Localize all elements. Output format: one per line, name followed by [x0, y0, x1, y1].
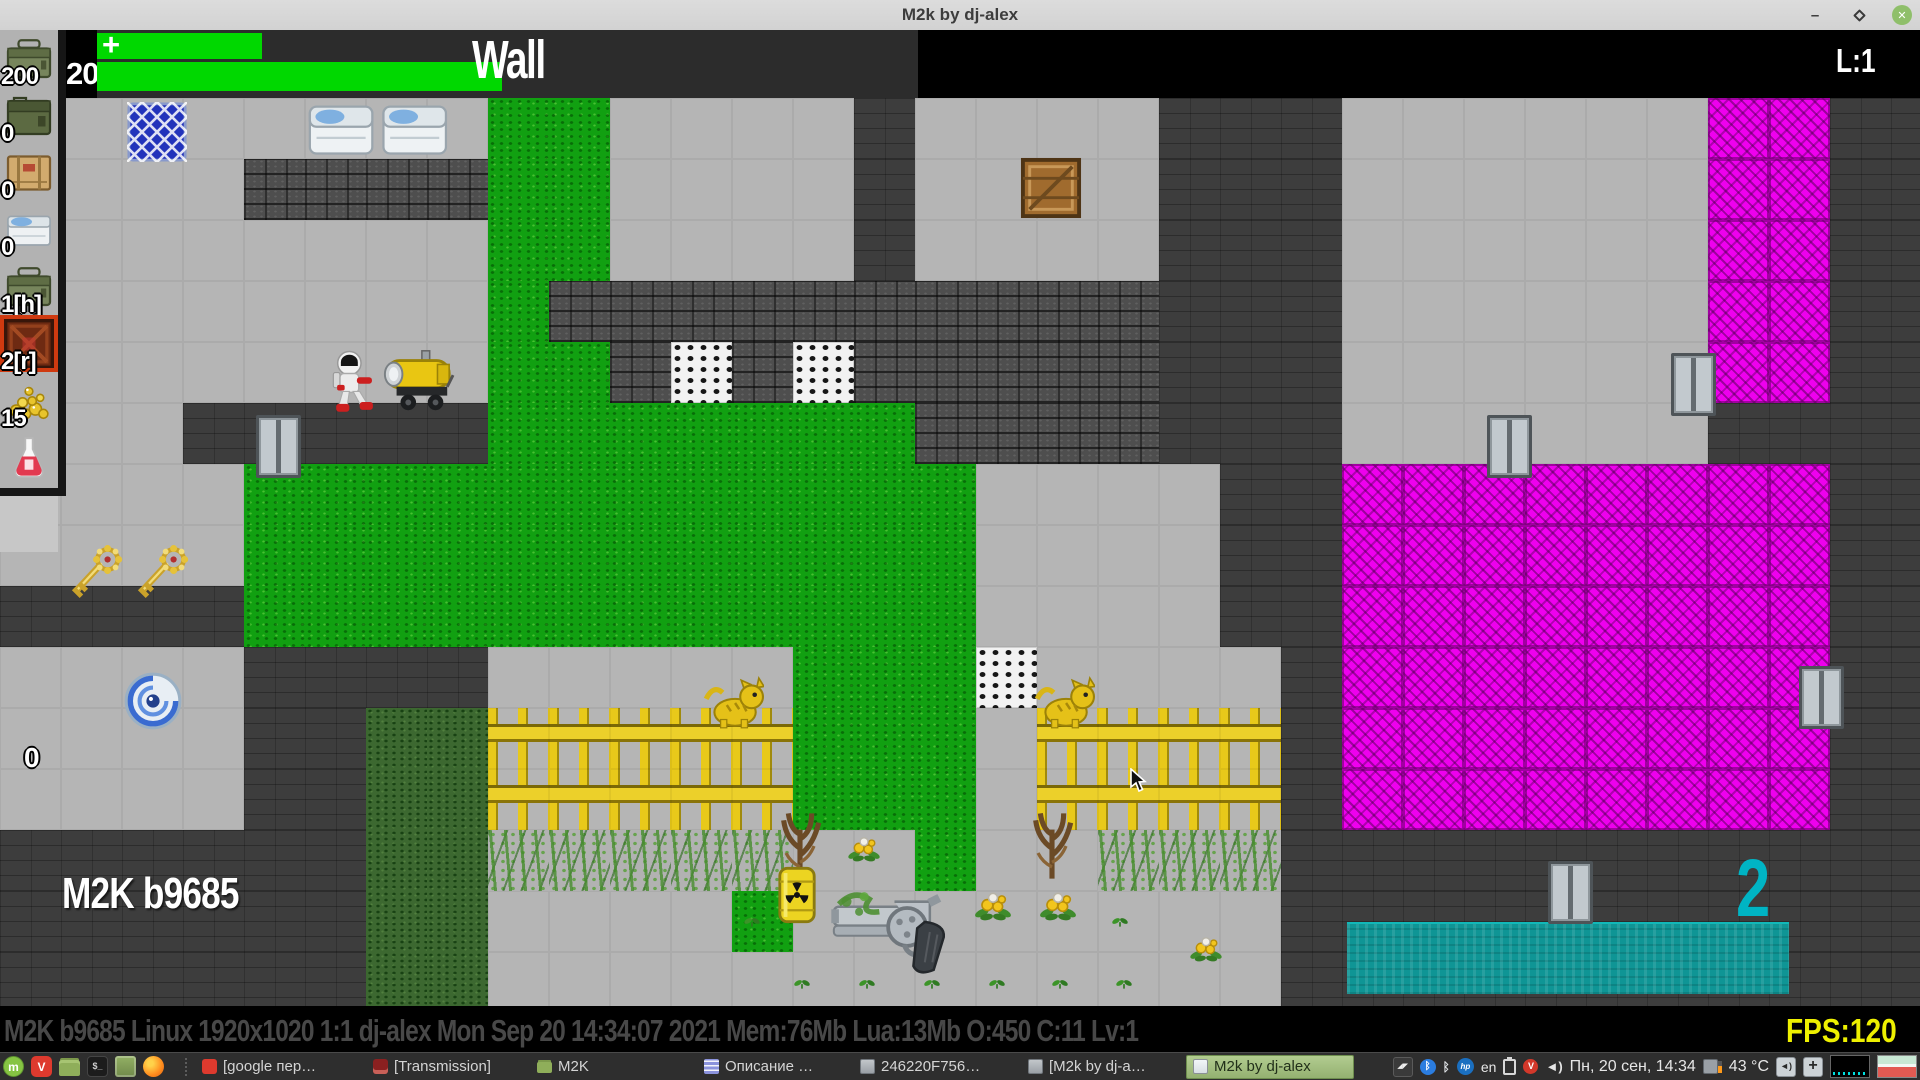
tile-floor [122, 464, 183, 525]
tile-floor [1159, 464, 1220, 525]
barrel[interactable] [776, 863, 818, 927]
supply-boxes[interactable] [304, 100, 454, 158]
tile-floor [1342, 98, 1403, 159]
icon-glyph: hp [1460, 1063, 1470, 1071]
tile-floor [61, 159, 122, 220]
tile-stone-brick [610, 281, 671, 342]
taskbar-launchers: mV$_ [3, 1053, 164, 1080]
icon-glyph: ᛒ [1443, 1061, 1450, 1073]
tile-wall [1830, 464, 1891, 525]
player-astronaut[interactable] [332, 350, 378, 414]
tile-magenta-wall [1464, 769, 1525, 830]
doc-icon [704, 1059, 719, 1074]
tile-magenta-wall [1769, 464, 1830, 525]
teleport-pad[interactable] [127, 102, 187, 162]
tile-grass [854, 769, 915, 830]
taskbar-window-2[interactable]: [Transmission] [367, 1055, 525, 1079]
tile-wall [1220, 220, 1281, 281]
move-box[interactable]: + [1803, 1057, 1823, 1077]
transmission-icon [373, 1059, 388, 1074]
tile-floor [1159, 525, 1220, 586]
tile-moss [366, 830, 427, 891]
tile-fence [1159, 769, 1220, 830]
tile-floor [1586, 342, 1647, 403]
volume[interactable]: ◄) [1545, 1060, 1562, 1073]
elevator-door[interactable] [256, 415, 301, 478]
tile-floor [122, 220, 183, 281]
cat[interactable] [1033, 674, 1095, 732]
mint-menu-icon[interactable]: m [3, 1056, 24, 1077]
tile-stone-brick [1037, 342, 1098, 403]
tile-floor [1403, 220, 1464, 281]
tile-grass [671, 525, 732, 586]
taskbar-separator [185, 1058, 187, 1076]
tile-floor [915, 220, 976, 281]
tile-floor [1525, 159, 1586, 220]
tile-grass [610, 464, 671, 525]
tile-wall [1891, 586, 1920, 647]
tile-grass [549, 525, 610, 586]
tile-wall [366, 647, 427, 708]
tile-wall [1830, 342, 1891, 403]
maximize-button[interactable] [1848, 4, 1870, 26]
green-app-icon[interactable] [115, 1056, 136, 1077]
tile-floor [305, 281, 366, 342]
tile-wall [0, 952, 61, 1013]
tile-grass [854, 525, 915, 586]
game-map[interactable] [0, 98, 1920, 1016]
inventory-slot-6[interactable]: 2[r] [0, 315, 58, 372]
tile-wall [1159, 342, 1220, 403]
tile-wall [1281, 98, 1342, 159]
tile-wall [0, 830, 61, 891]
tile-grass [488, 281, 549, 342]
tile-grass [305, 525, 366, 586]
tile-grass [793, 403, 854, 464]
tile-fence [1220, 708, 1281, 769]
tile-wall [305, 891, 366, 952]
tile-stone-brick [1098, 403, 1159, 464]
tile-wall [1220, 281, 1281, 342]
tile-wall [1281, 769, 1342, 830]
tile-floor [1098, 586, 1159, 647]
tile-wall [183, 586, 244, 647]
tile-floor [671, 952, 732, 1013]
tile-floor [610, 98, 671, 159]
audio-box[interactable]: ◄) [1776, 1057, 1796, 1077]
tile-magenta-wall [1403, 708, 1464, 769]
tile-grass [915, 769, 976, 830]
tile-wall [1159, 98, 1220, 159]
tile-floor [61, 98, 122, 159]
tile-wall [1647, 830, 1708, 891]
tile-floor [671, 159, 732, 220]
sprout [793, 976, 811, 990]
tile-floor [1342, 403, 1403, 464]
tile-wall [1891, 830, 1920, 891]
icon-glyph: V [37, 1061, 45, 1073]
tile-magenta-wall [1403, 464, 1464, 525]
tile-floor [549, 952, 610, 1013]
tile-wall [183, 403, 244, 464]
hp-badge[interactable]: hp [1457, 1058, 1474, 1075]
window-button-label: M2K [558, 1058, 589, 1075]
bluetooth-plain[interactable]: ᛒ [1443, 1061, 1450, 1073]
tile-moss [427, 769, 488, 830]
taskbar-window-8[interactable]: M2k by dj-alex [1186, 1055, 1354, 1079]
tile-wall [183, 952, 244, 1013]
tile-floor [915, 159, 976, 220]
tile-vines [549, 830, 610, 891]
tile-magenta-wall [1708, 159, 1769, 220]
tile-floor [122, 159, 183, 220]
tile-floor [488, 952, 549, 1013]
tile-floor [1220, 952, 1281, 1013]
status-text: M2K b9685 Linux 1920x1020 1:1 dj-alex Mo… [4, 1013, 1138, 1049]
tile-grass [610, 403, 671, 464]
tile-magenta-wall [1769, 220, 1830, 281]
tile-floor [915, 98, 976, 159]
tile-checker [671, 342, 732, 403]
tile-wall [1281, 281, 1342, 342]
cat[interactable] [702, 674, 764, 732]
wooden-crate[interactable] [1020, 157, 1082, 219]
tile-vines [610, 830, 671, 891]
tile-floor [1647, 98, 1708, 159]
tile-floor [976, 708, 1037, 769]
clipboard[interactable] [1503, 1059, 1516, 1075]
flower [1038, 889, 1078, 921]
tile-fence [610, 708, 671, 769]
tile-magenta-wall [1586, 525, 1647, 586]
tile-grass [366, 586, 427, 647]
taskbar-window-3[interactable]: M2K [531, 1055, 616, 1079]
tile-fence [1098, 708, 1159, 769]
tile-grass [915, 830, 976, 891]
tile-wall [1891, 647, 1920, 708]
tile-floor [1342, 220, 1403, 281]
tile-wall [1220, 403, 1281, 464]
graph-stripes[interactable] [1877, 1055, 1917, 1078]
tile-grass [488, 220, 549, 281]
tile-floor [1220, 647, 1281, 708]
tile-floor [488, 647, 549, 708]
tile-floor [1342, 281, 1403, 342]
tile-wall [1281, 586, 1342, 647]
tile-wall [1891, 891, 1920, 952]
tile-grass [366, 464, 427, 525]
inventory-slot-1[interactable]: 200 [0, 30, 58, 87]
tile-fence [1220, 769, 1281, 830]
tile-floor [976, 586, 1037, 647]
desktop: 0 M2K b9685 2 200 + Wall L:1 2000001[h]2… [0, 0, 1920, 1080]
temperature[interactable]: 43 °C [1729, 1058, 1769, 1076]
cpu-monitor[interactable] [1703, 1059, 1718, 1074]
tile-fence [549, 708, 610, 769]
tile-grass [793, 586, 854, 647]
tile-moss [366, 952, 427, 1013]
inventory-slot-5[interactable]: 1[h] [0, 258, 58, 315]
window-button-label: 246220F756… [881, 1058, 980, 1075]
graph-black[interactable] [1830, 1055, 1870, 1078]
tile-floor [1586, 220, 1647, 281]
inventory-slot-8[interactable] [0, 429, 58, 486]
inventory-slot-3[interactable]: 0 [0, 144, 58, 201]
tile-floor [1464, 342, 1525, 403]
tile-stone-brick [976, 342, 1037, 403]
tile-grass [732, 403, 793, 464]
window-titlebar[interactable]: M2k by dj-alex – ✕ [0, 0, 1920, 30]
tile-floor [1586, 159, 1647, 220]
elevator-door[interactable] [1671, 353, 1716, 416]
slot-count: 2[r] [1, 350, 36, 374]
tile-floor [0, 769, 61, 830]
tile-wall [1281, 830, 1342, 891]
tile-magenta-wall [1586, 769, 1647, 830]
tile-wall [1891, 159, 1920, 220]
tile-grass [305, 586, 366, 647]
heater[interactable] [381, 348, 455, 414]
health-bar: + [97, 33, 262, 59]
tile-wall [305, 769, 366, 830]
firefox-icon[interactable] [143, 1056, 164, 1077]
item-count-label: 0 [24, 744, 40, 772]
tile-floor [793, 98, 854, 159]
tile-wall [122, 952, 183, 1013]
tile-stone-brick [1037, 281, 1098, 342]
tile-floor [671, 98, 732, 159]
tile-floor [122, 769, 183, 830]
elevator-door[interactable] [1487, 415, 1532, 478]
tile-floor [976, 525, 1037, 586]
slot-count: 15 [1, 407, 26, 431]
tile-floor [1037, 586, 1098, 647]
inventory-slot-4[interactable]: 0 [0, 201, 58, 258]
tile-stone-brick [1098, 281, 1159, 342]
tile-stone-brick [427, 159, 488, 220]
tile-wall [1281, 952, 1342, 1013]
elevator-door[interactable] [1799, 666, 1844, 729]
tile-magenta-wall [1708, 220, 1769, 281]
tile-wall [1830, 220, 1891, 281]
tile-stone-brick [854, 281, 915, 342]
gold-key[interactable] [64, 540, 126, 608]
tile-magenta-wall [1525, 708, 1586, 769]
tile-stone-brick [549, 281, 610, 342]
fps-counter: FPS:120 [1786, 1012, 1897, 1050]
inventory-slot-2[interactable]: 0 [0, 87, 58, 144]
tile-wall [854, 98, 915, 159]
flash-icon[interactable]: ◢◤ [1393, 1057, 1413, 1077]
tile-wall [1769, 830, 1830, 891]
tile-stone-brick [793, 281, 854, 342]
tile-wall [1342, 830, 1403, 891]
tile-grass [305, 464, 366, 525]
tile-grass [549, 159, 610, 220]
tile-stone-brick [610, 342, 671, 403]
tile-grass [549, 403, 610, 464]
vivaldi-launch-icon[interactable]: V [31, 1056, 52, 1077]
sprout [1051, 976, 1069, 990]
tile-magenta-wall [1403, 525, 1464, 586]
tile-floor [1586, 281, 1647, 342]
slot-count: 0 [1, 179, 13, 203]
tile-magenta-wall [1647, 769, 1708, 830]
tile-floor [1647, 281, 1708, 342]
tile-wall [1830, 586, 1891, 647]
tile-floor [1037, 525, 1098, 586]
tile-floor [732, 159, 793, 220]
taskbar-window-5[interactable]: Описание … [698, 1055, 848, 1079]
red-badge[interactable]: V [1523, 1059, 1538, 1074]
tile-floor [1403, 403, 1464, 464]
tile-magenta-wall [1525, 525, 1586, 586]
tile-floor [488, 891, 549, 952]
tile-wall [305, 708, 366, 769]
tile-floor [1037, 464, 1098, 525]
tile-wall [0, 891, 61, 952]
tile-grass [671, 586, 732, 647]
tile-wall [1281, 891, 1342, 952]
files-icon[interactable] [59, 1060, 80, 1076]
close-button[interactable]: ✕ [1892, 5, 1912, 25]
tile-floor [1464, 220, 1525, 281]
tile-magenta-wall [1769, 98, 1830, 159]
taskbar-window-1[interactable]: [google пер… [196, 1055, 361, 1079]
tile-floor [183, 220, 244, 281]
tile-wall [305, 830, 366, 891]
inventory-sidebar: 2000001[h]2[r]15 [0, 30, 66, 496]
plus-icon: + [102, 27, 120, 63]
portal[interactable] [120, 668, 186, 734]
clock[interactable]: Пн, 20 сен, 14:34 [1570, 1058, 1696, 1076]
energy-bar [97, 62, 502, 91]
tile-magenta-wall [1342, 769, 1403, 830]
tile-grass [915, 525, 976, 586]
cyan-number-label: 2 [1736, 848, 1770, 930]
tile-wall [244, 769, 305, 830]
tile-magenta-wall [1769, 342, 1830, 403]
tile-grass [854, 708, 915, 769]
tile-grass [488, 403, 549, 464]
tile-magenta-wall [1708, 98, 1769, 159]
tile-magenta-wall [1403, 647, 1464, 708]
gold-key[interactable] [130, 540, 192, 608]
mouse-cursor [1130, 768, 1152, 799]
hud-counter: 200 [66, 30, 97, 98]
tile-grass [610, 586, 671, 647]
tile-floor [1647, 220, 1708, 281]
slot-count: 1[h] [1, 293, 41, 317]
tile-magenta-wall [1708, 464, 1769, 525]
tile-floor [549, 647, 610, 708]
tile-magenta-wall [1464, 525, 1525, 586]
tile-wall [1891, 525, 1920, 586]
tile-floor [183, 464, 244, 525]
inventory-slot-7[interactable]: 15 [0, 372, 58, 429]
tile-floor [61, 342, 122, 403]
keyboard-layout[interactable]: en [1481, 1059, 1497, 1075]
tile-stone-brick [732, 342, 793, 403]
tile-wall [1281, 708, 1342, 769]
revolver[interactable] [828, 884, 966, 980]
tile-magenta-wall [1586, 647, 1647, 708]
taskbar-window-6[interactable]: 246220F756… [854, 1055, 1016, 1079]
tile-fence [671, 769, 732, 830]
tile-floor [671, 891, 732, 952]
tile-grass [732, 586, 793, 647]
tile-grass [793, 647, 854, 708]
tile-magenta-wall [1769, 159, 1830, 220]
sprout [923, 976, 941, 990]
tile-floor [183, 525, 244, 586]
tile-wall [244, 708, 305, 769]
tile-stone-brick [854, 342, 915, 403]
tile-floor [1525, 342, 1586, 403]
icon-glyph: ◄) [1780, 1062, 1792, 1071]
tile-stone-brick [976, 403, 1037, 464]
tile-magenta-wall [1769, 769, 1830, 830]
tile-moss [427, 891, 488, 952]
tile-wall [1220, 98, 1281, 159]
window-title: M2k by dj-alex [0, 5, 1920, 25]
taskbar-window-7[interactable]: [M2k by dj-a… [1022, 1055, 1180, 1079]
tile-floor [61, 647, 122, 708]
tile-floor [122, 281, 183, 342]
tile-floor [1342, 159, 1403, 220]
tile-wall [1220, 586, 1281, 647]
tile-floor [122, 403, 183, 464]
sprout [1115, 976, 1133, 990]
window-button-label: [Transmission] [394, 1058, 491, 1075]
tile-floor [1159, 586, 1220, 647]
window-button-label: [M2k by dj-a… [1049, 1058, 1146, 1075]
tile-floor [732, 952, 793, 1013]
tile-magenta-wall [1708, 769, 1769, 830]
tile-wall [1830, 891, 1891, 952]
minimize-button[interactable]: – [1804, 4, 1826, 26]
tile-floor [61, 708, 122, 769]
icon-glyph: m [8, 1061, 19, 1073]
tile-wall [1891, 98, 1920, 159]
tile-magenta-wall [1647, 464, 1708, 525]
tile-magenta-wall [1708, 708, 1769, 769]
tile-wall [244, 647, 305, 708]
tile-floor [1098, 525, 1159, 586]
tile-floor [1525, 281, 1586, 342]
tile-grass [915, 647, 976, 708]
sprout [988, 976, 1006, 990]
tile-wall [1891, 952, 1920, 1013]
level-indicator: L:1 [1836, 42, 1876, 80]
tile-stone-brick [915, 342, 976, 403]
terminal-icon[interactable]: $_ [87, 1056, 108, 1077]
tile-grass [427, 525, 488, 586]
tile-wall [1708, 403, 1769, 464]
tile-floor [1464, 159, 1525, 220]
taskbar-windows: [google пер…[Transmission]M2KОписание …2… [196, 1053, 1354, 1080]
bluetooth-blue[interactable]: ᛒ [1420, 1059, 1436, 1075]
tile-fence [610, 769, 671, 830]
elevator-door[interactable] [1548, 861, 1593, 924]
icon-glyph: V [1528, 1062, 1534, 1071]
tile-magenta-wall [1464, 586, 1525, 647]
tile-grass [549, 220, 610, 281]
taskbar: mV$_ [google пер…[Transmission]M2KОписан… [0, 1052, 1920, 1080]
hud-band-right [918, 30, 1920, 98]
tile-wall [854, 220, 915, 281]
tile-fence [549, 769, 610, 830]
